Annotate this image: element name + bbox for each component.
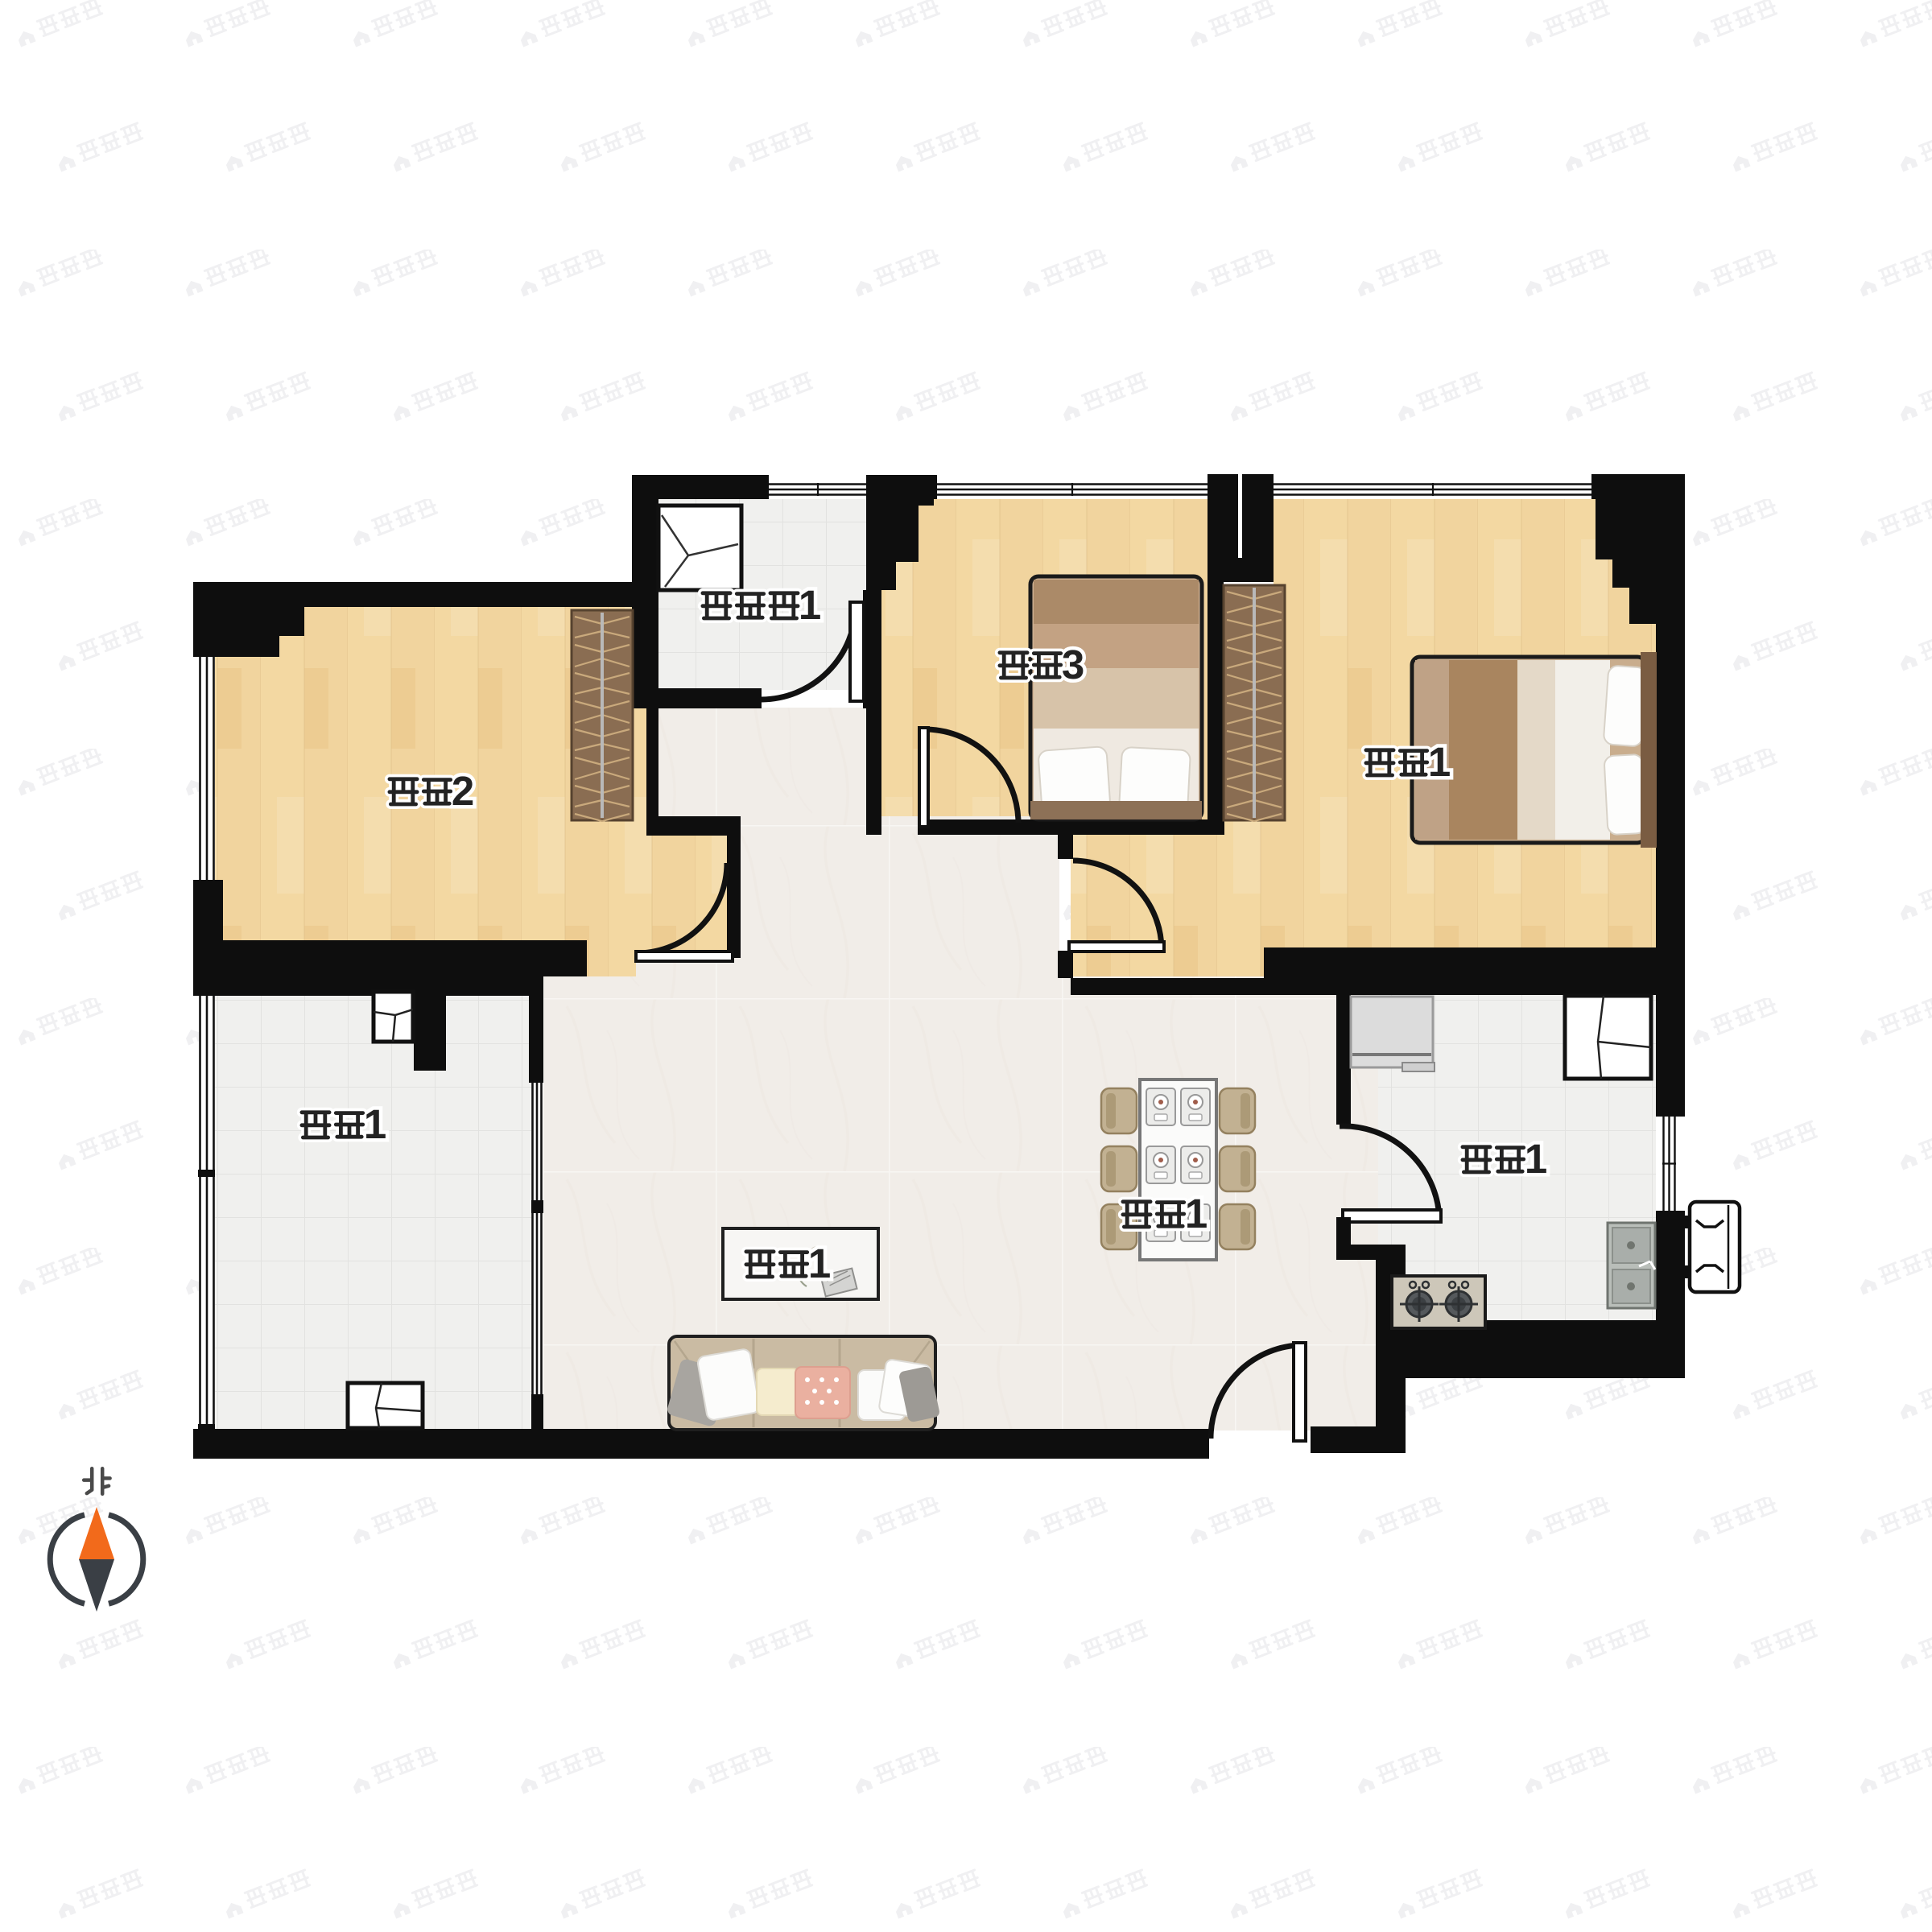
svg-text:1: 1 — [1428, 739, 1451, 785]
svg-text:3: 3 — [1062, 642, 1084, 687]
svg-text:1: 1 — [364, 1101, 386, 1147]
svg-text:1: 1 — [1525, 1136, 1547, 1182]
svg-text:1: 1 — [808, 1241, 831, 1286]
svg-text:2: 2 — [452, 768, 474, 814]
svg-text:1: 1 — [799, 582, 821, 628]
svg-text:1: 1 — [1185, 1191, 1207, 1236]
